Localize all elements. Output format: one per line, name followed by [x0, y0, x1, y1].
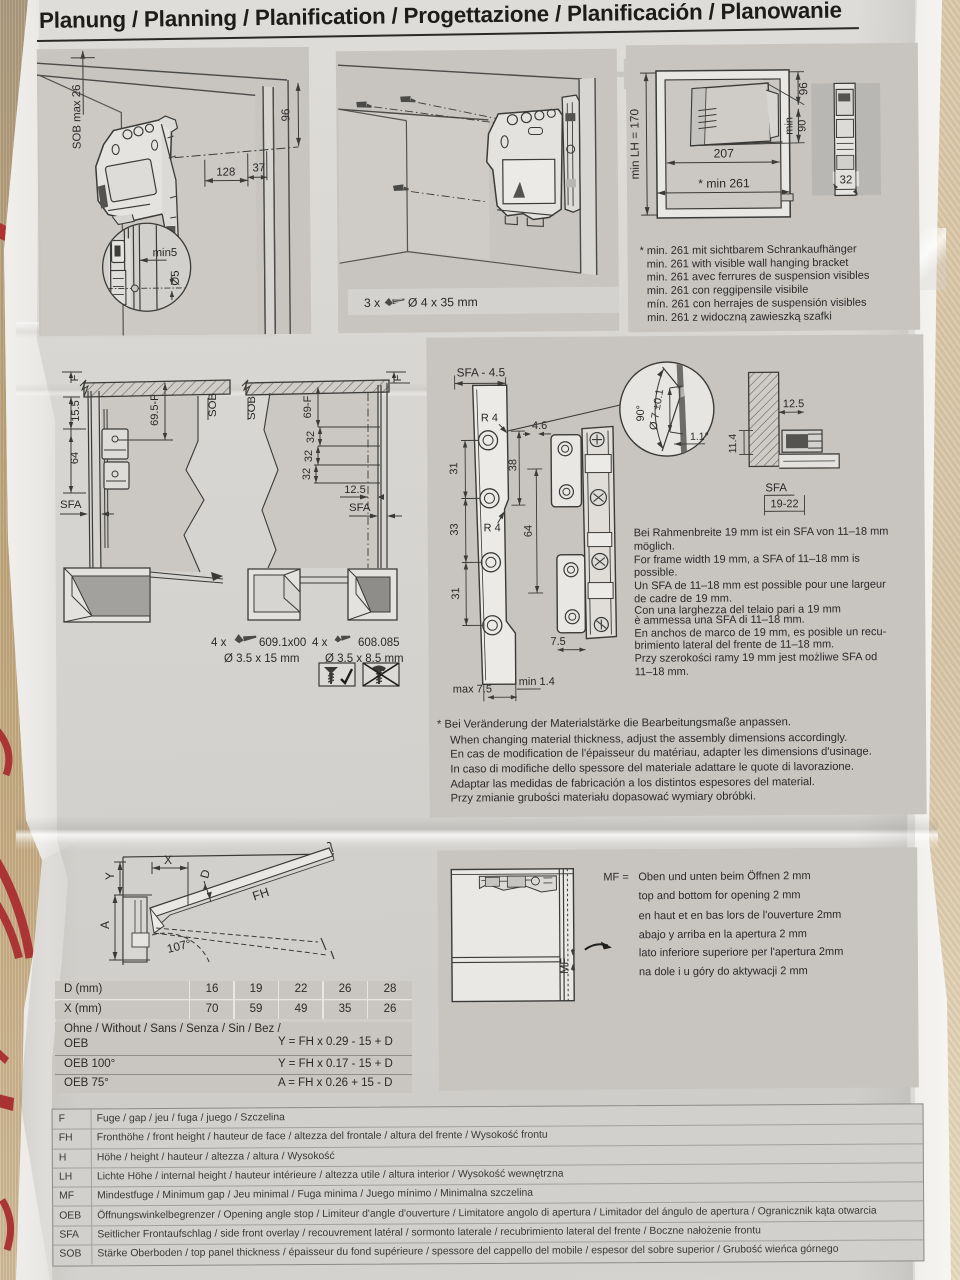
svg-text:For frame width 19 mm, a SFA o: For frame width 19 mm, a SFA of 11–18 mm… — [634, 553, 861, 567]
svg-text:A: A — [98, 921, 112, 929]
svg-text:When changing material thickne: When changing material thickness, adjust… — [450, 732, 847, 747]
svg-text:min: min — [783, 117, 795, 135]
svg-text:lato inferiore superiore per l: lato inferiore superiore per l'apertura … — [639, 946, 844, 959]
svg-text:32: 32 — [303, 450, 315, 462]
svg-text:na dole i u góry do aktywacji: na dole i u góry do aktywacji 2 mm — [639, 965, 808, 978]
svg-text:96: 96 — [796, 82, 810, 96]
svg-text:FH: FH — [251, 885, 271, 903]
svg-text:207: 207 — [713, 146, 734, 160]
svg-text:3 x: 3 x — [364, 296, 380, 310]
svg-text:* Bei Veränderung der Material: * Bei Veränderung der Materialstärke die… — [437, 716, 791, 730]
svg-text:12.5: 12.5 — [783, 398, 805, 410]
svg-text:Ø 3.5 x 15 mm: Ø 3.5 x 15 mm — [224, 653, 299, 665]
svg-text:609.1x00: 609.1x00 — [259, 637, 306, 649]
svg-text:R 4: R 4 — [484, 522, 501, 534]
svg-text:SFA: SFA — [765, 482, 787, 494]
svg-text:Un SFA de 11–18 mm est possibl: Un SFA de 11–18 mm est possible pour une… — [634, 579, 886, 593]
svg-text:107°: 107° — [165, 936, 192, 956]
svg-text:90: 90 — [796, 120, 808, 132]
svg-text:min. 261 z widoczną zawieszką: min. 261 z widoczną zawieszką szafki — [647, 310, 832, 324]
svg-text:En cas de modification de l'ép: En cas de modification de l'épaisseur du… — [450, 746, 872, 761]
svg-text:min. 261 avec ferrures de susp: min. 261 avec ferrures de suspension vis… — [647, 270, 870, 284]
svg-text:F: F — [392, 374, 404, 381]
svg-text:max 7.5: max 7.5 — [453, 683, 492, 695]
svg-text:min5: min5 — [152, 247, 177, 259]
svg-text:è ammessa una SFA di 11–18 mm.: è ammessa una SFA di 11–18 mm. — [634, 614, 804, 627]
svg-text:90°: 90° — [635, 405, 647, 421]
svg-text:brimiento lateral del frente d: brimiento lateral del frente de 11–18 mm… — [634, 638, 834, 651]
svg-text:SOB: SOB — [207, 393, 219, 417]
svg-text:possible.: possible. — [634, 566, 678, 578]
svg-text:608.085: 608.085 — [358, 637, 400, 649]
svg-text:abajo y arriba en la apertura: abajo y arriba en la apertura 2 mm — [639, 928, 807, 941]
svg-text:mín. 261 con herrajes de suspe: mín. 261 con herrajes de suspensión visi… — [647, 297, 867, 311]
svg-text:Przy zmianie grubości materiał: Przy zmianie grubości materiału dopasowa… — [451, 790, 756, 804]
svg-text:Bei Rahmenbreite 19 mm ist ein: Bei Rahmenbreite 19 mm ist ein SFA von 1… — [634, 526, 889, 540]
svg-text:R 4: R 4 — [481, 412, 498, 424]
svg-text:möglich.: möglich. — [634, 541, 675, 553]
svg-text:Adaptar las medidas de fabrica: Adaptar las medidas de fabricación a los… — [450, 776, 814, 791]
svg-text:32: 32 — [840, 174, 853, 186]
svg-text:15.5: 15.5 — [70, 400, 82, 421]
svg-text:4.6: 4.6 — [532, 420, 547, 432]
svg-text:* min. 261 mit sichtbarem Schr: * min. 261 mit sichtbarem Schrankaufhäng… — [639, 243, 856, 257]
svg-text:69.5-F: 69.5-F — [149, 394, 161, 426]
svg-text:69-F: 69-F — [302, 395, 314, 418]
svg-text:SFA - 4.5: SFA - 4.5 — [457, 365, 506, 379]
svg-text:* min 261: * min 261 — [698, 176, 750, 190]
svg-text:X: X — [164, 853, 172, 867]
svg-text:min 1.4: min 1.4 — [519, 676, 555, 688]
svg-text:min LH = 170: min LH = 170 — [627, 108, 642, 179]
svg-text:SFA: SFA — [349, 502, 371, 514]
svg-text:MF =: MF = — [603, 871, 628, 883]
svg-text:Oben und unten beim Öffnen 2 m: Oben und unten beim Öffnen 2 mm — [638, 870, 810, 883]
svg-text:Ø 4 x 35 mm: Ø 4 x 35 mm — [408, 295, 478, 310]
svg-text:SFA: SFA — [60, 499, 82, 511]
svg-text:31: 31 — [448, 462, 460, 474]
svg-text:32: 32 — [305, 431, 317, 443]
svg-text:4 x: 4 x — [312, 637, 328, 649]
svg-text:11–18 mm.: 11–18 mm. — [635, 666, 689, 678]
svg-text:96: 96 — [280, 109, 292, 122]
svg-text:MF: MF — [559, 958, 571, 974]
svg-text:In caso di modifiche dello spe: In caso di modifiche dello spessore del … — [450, 761, 854, 776]
svg-text:12.5: 12.5 — [344, 484, 365, 496]
svg-text:top and bottom for opening 2 m: top and bottom for opening 2 mm — [638, 889, 800, 902]
svg-text:37: 37 — [252, 162, 265, 174]
svg-text:SOB max 26: SOB max 26 — [71, 85, 84, 150]
svg-text:en haut et en bas lors de l'ou: en haut et en bas lors de l'ouverture 2m… — [639, 909, 842, 922]
svg-text:32: 32 — [301, 468, 313, 480]
svg-text:Przy szerokości ramy 19 mm jes: Przy szerokości ramy 19 mm jest możliwe … — [635, 651, 878, 665]
svg-text:31: 31 — [450, 587, 462, 599]
svg-text:D: D — [197, 868, 213, 880]
svg-text:1.1°: 1.1° — [690, 431, 709, 443]
svg-text:38: 38 — [507, 459, 519, 471]
svg-text:F: F — [69, 374, 81, 381]
svg-text:En anchos de marco de 19 mm, e: En anchos de marco de 19 mm, es posible … — [634, 626, 886, 640]
svg-text:11.4: 11.4 — [727, 434, 739, 454]
svg-text:Y: Y — [103, 872, 117, 880]
svg-text:64: 64 — [69, 452, 81, 464]
svg-text:64: 64 — [523, 525, 535, 537]
svg-text:19-22: 19-22 — [770, 498, 798, 510]
svg-text:128: 128 — [216, 166, 235, 178]
svg-text:min. 261 con reggipensile visi: min. 261 con reggipensile visibile — [647, 284, 809, 297]
svg-text:7.5: 7.5 — [550, 636, 565, 648]
svg-text:33: 33 — [449, 523, 461, 535]
svg-text:min. 261 with visible wall han: min. 261 with visible wall hanging brack… — [647, 257, 849, 271]
svg-text:4 x: 4 x — [211, 637, 227, 649]
